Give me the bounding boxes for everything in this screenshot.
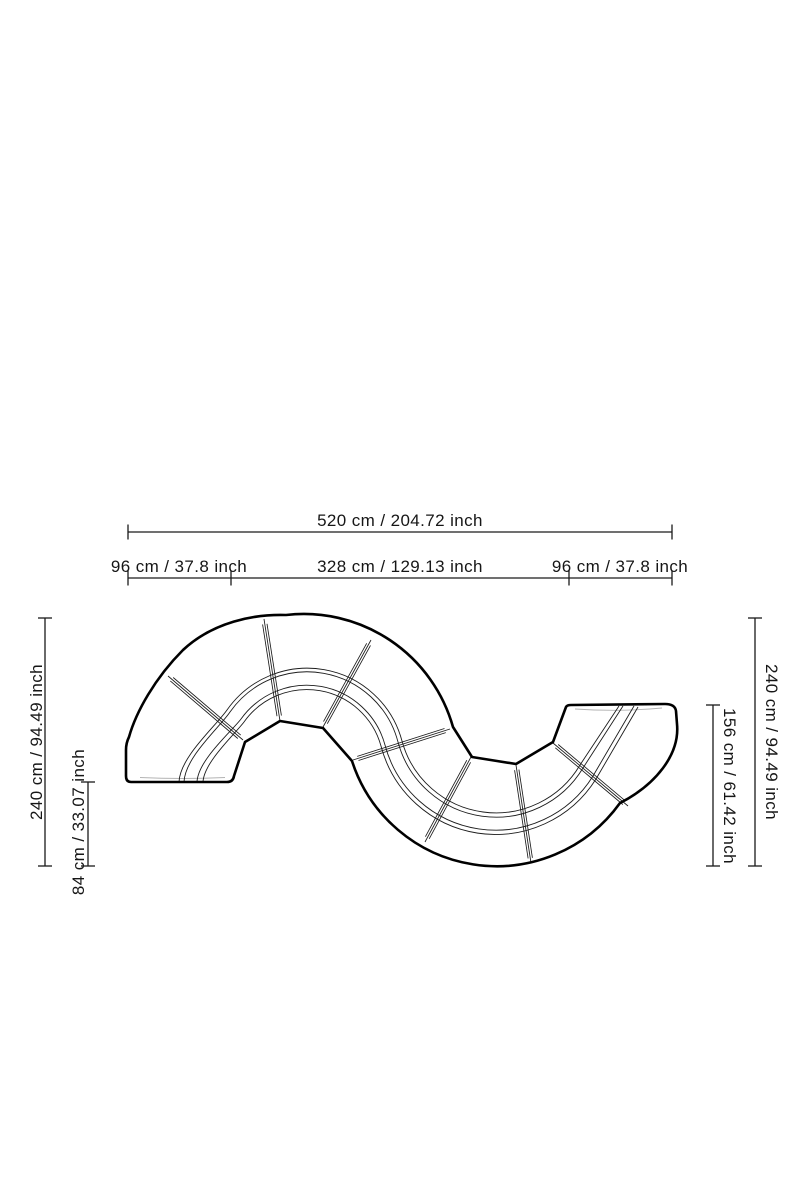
module-seam-line	[429, 762, 470, 839]
sofa-drawing	[126, 614, 677, 866]
module-seam-line	[323, 640, 371, 727]
module-seam-line	[555, 748, 623, 805]
seat-piping-line	[184, 672, 623, 817]
module-seam-line	[558, 745, 626, 802]
module-seam-line	[327, 645, 370, 723]
module-seam-line	[267, 624, 281, 716]
dimension-label-right-end-depth: 156 cm / 61.42 inch	[720, 708, 739, 864]
module-seam-line	[324, 643, 367, 721]
dimension-line-right-depth	[748, 618, 762, 866]
module-seam-line	[425, 760, 466, 837]
dimension-diagram-canvas: 520 cm / 204.72 inch 96 cm / 37.8 inch 3…	[0, 0, 800, 1200]
module-seam-line	[353, 729, 450, 760]
dimension-label-right-depth: 240 cm / 94.49 inch	[762, 664, 781, 820]
module-seam-line	[553, 743, 628, 806]
module-seam-line	[264, 619, 280, 721]
module-seam-line	[173, 678, 241, 736]
dimension-label-total-width: 520 cm / 204.72 inch	[317, 511, 483, 530]
dimension-label-middle-section-width: 328 cm / 129.13 inch	[317, 557, 483, 576]
dimension-label-left-section-width: 96 cm / 37.8 inch	[111, 557, 247, 576]
dimension-label-left-depth: 240 cm / 94.49 inch	[27, 664, 46, 820]
left-module-shadow-line	[140, 778, 225, 779]
seat-piping-line	[197, 685, 634, 830]
module-seam-line	[168, 676, 243, 740]
dimension-label-left-end-depth: 84 cm / 33.07 inch	[69, 749, 88, 895]
module-seam-line	[516, 765, 531, 863]
seat-piping-lines	[179, 668, 638, 834]
sofa-dimension-diagram: 520 cm / 204.72 inch 96 cm / 37.8 inch 3…	[0, 0, 800, 1200]
dimension-label-right-section-width: 96 cm / 37.8 inch	[552, 557, 688, 576]
right-module-shadow-line	[575, 708, 662, 710]
module-seam-line	[359, 733, 446, 761]
dimension-line-right-end-depth	[706, 705, 720, 866]
module-seam-line	[425, 757, 471, 842]
